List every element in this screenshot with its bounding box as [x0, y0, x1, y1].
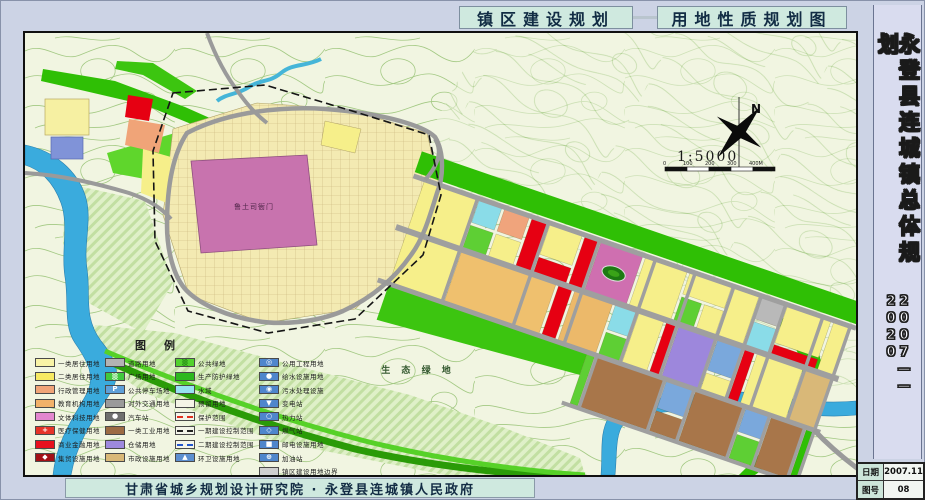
date-label: 日期 — [858, 464, 884, 481]
header-connector — [633, 16, 657, 19]
legend-swatch: ⊕ — [259, 453, 279, 462]
legend-label: 污水处理设施 — [282, 385, 324, 395]
legend-swatch — [35, 412, 55, 421]
legend-item: ◎公用工程用地 — [259, 358, 338, 367]
sheet-value: 08 — [884, 481, 923, 498]
legend-label: 公用工程用地 — [282, 358, 324, 368]
legend-swatch — [35, 385, 55, 394]
legend-swatch: ◇ — [259, 426, 279, 435]
legend-swatch — [35, 372, 55, 381]
sheet-label: 图号 — [858, 481, 884, 498]
legend-swatch: ◆ — [35, 453, 55, 462]
legend-item: ●汽车站 — [105, 412, 170, 421]
header-title-left: 镇区建设规划 — [459, 6, 633, 29]
legend-swatch — [105, 358, 125, 367]
legend-label: 公共绿地 — [198, 358, 226, 368]
legend-label: 水域 — [198, 385, 212, 395]
eco-green-label: 生 态 绿 地 — [381, 364, 454, 376]
legend-label: 邮电设施用地 — [282, 439, 324, 449]
legend-swatch — [259, 467, 279, 476]
legend-swatch — [175, 399, 195, 408]
title-block: 日期 2007.11 图号 08 — [856, 462, 925, 500]
legend-item: ●给水设施用地 — [259, 372, 338, 381]
legend-swatch — [105, 426, 125, 435]
legend-item: 仓储用地 — [105, 440, 170, 449]
legend-swatch — [175, 372, 195, 381]
legend-item: 水域 — [175, 385, 254, 394]
legend-swatch — [175, 385, 195, 394]
legend-label: 商业金融用地 — [58, 439, 100, 449]
legend-item: 商业金融用地 — [35, 440, 100, 449]
legend-item: 二期建设控制范围 — [175, 440, 254, 449]
credit-bar: 甘肃省城乡规划设计研究院 · 永登县连城镇人民政府 — [65, 478, 535, 498]
legend-label: 公共停车场地 — [128, 385, 170, 395]
legend-label: 生产防护绿地 — [198, 371, 240, 381]
legend: 图例 一类居住用地二类居住用地行政管理用地教育机构用地文体科技用地+医疗保健用地… — [35, 337, 275, 476]
legend-item: 二类居住用地 — [35, 372, 100, 381]
svg-text:300: 300 — [727, 161, 737, 167]
date-value: 2007.11 — [884, 464, 923, 481]
legend-swatch: ▒ — [105, 372, 125, 381]
legend-label: 给水设施用地 — [282, 371, 324, 381]
legend-label: 二类居住用地 — [58, 371, 100, 381]
legend-swatch — [35, 358, 55, 367]
legend-column: 一类居住用地二类居住用地行政管理用地教育机构用地文体科技用地+医疗保健用地商业金… — [35, 358, 100, 476]
legend-item: ◇燃气站 — [259, 426, 338, 435]
header-title-right: 用地性质规划图 — [657, 6, 847, 29]
legend-item: ○热力站 — [259, 412, 338, 421]
legend-swatch: ▼ — [259, 399, 279, 408]
legend-label: 燃气站 — [282, 425, 303, 435]
legend-item: 行政管理用地 — [35, 385, 100, 394]
sidebar: 永登县连城镇总体规划 2007——2020 — [873, 5, 922, 459]
legend-swatch: ▒ — [175, 358, 195, 367]
legend-swatch: ◎ — [259, 358, 279, 367]
legend-label: 汽车站 — [128, 412, 149, 422]
legend-label: 广场用地 — [128, 371, 156, 381]
legend-label: 变电站 — [282, 398, 303, 408]
svg-text:100: 100 — [683, 161, 693, 167]
legend-item: ▒广场用地 — [105, 372, 170, 381]
legend-label: 二期建设控制范围 — [198, 439, 254, 449]
legend-swatch — [105, 453, 125, 462]
legend-label: 文体科技用地 — [58, 412, 100, 422]
svg-text:0: 0 — [663, 161, 666, 167]
planning-map-frame: 鲁土司衙门 — [23, 31, 858, 477]
page: { "header": { "title_left": "镇区建设规划", "t… — [0, 0, 925, 500]
legend-item: 一期建设控制范围 — [175, 426, 254, 435]
legend-swatch: ● — [105, 412, 125, 421]
legend-swatch: P — [105, 385, 125, 394]
legend-label: 对外交通用地 — [128, 398, 170, 408]
legend-item: 教育机构用地 — [35, 399, 100, 408]
legend-swatch — [35, 440, 55, 449]
legend-columns: 一类居住用地二类居住用地行政管理用地教育机构用地文体科技用地+医疗保健用地商业金… — [35, 358, 275, 476]
legend-swatch — [175, 412, 195, 421]
legend-item: ▼变电站 — [259, 399, 338, 408]
legend-label: 热力站 — [282, 412, 303, 422]
legend-label: 一类居住用地 — [58, 358, 100, 368]
drawing-set-title: 永登县连城镇总体规划 — [877, 33, 919, 285]
legend-swatch — [175, 440, 195, 449]
legend-label: 医疗保健用地 — [58, 425, 100, 435]
legend-swatch: + — [35, 426, 55, 435]
legend-item: P公共停车场地 — [105, 385, 170, 394]
legend-column: ◎公用工程用地●给水设施用地◉污水处理设施▼变电站○热力站◇燃气站■邮电设施用地… — [259, 358, 338, 476]
legend-swatch — [105, 399, 125, 408]
legend-item: 一类居住用地 — [35, 358, 100, 367]
legend-item: ◆集贸设施用地 — [35, 453, 100, 462]
legend-label: 一类工业用地 — [128, 425, 170, 435]
legend-label: 仓储用地 — [128, 439, 156, 449]
legend-item: 对外交通用地 — [105, 399, 170, 408]
legend-item: 一类工业用地 — [105, 426, 170, 435]
legend-swatch: ◉ — [259, 385, 279, 394]
legend-swatch: ▲ — [175, 453, 195, 462]
north-label: N — [751, 102, 761, 116]
legend-item: 市政设施用地 — [105, 453, 170, 462]
legend-item: ■邮电设施用地 — [259, 440, 338, 449]
legend-column: 道路用地▒广场用地P公共停车场地对外交通用地●汽车站一类工业用地仓储用地市政设施… — [105, 358, 170, 476]
legend-swatch: ● — [259, 372, 279, 381]
legend-item: ⊕加油站 — [259, 453, 338, 462]
historic-site-label: 鲁土司衙门 — [234, 202, 274, 211]
legend-swatch — [175, 426, 195, 435]
legend-item: 镇区建设用地边界 — [259, 467, 338, 476]
legend-label: 加油站 — [282, 453, 303, 463]
legend-label: 市政设施用地 — [128, 453, 170, 463]
legend-label: 预留用地 — [198, 398, 226, 408]
legend-swatch — [35, 399, 55, 408]
legend-title: 图例 — [35, 337, 275, 353]
drawing-set-years: 2007——2020 — [885, 294, 911, 459]
legend-label: 行政管理用地 — [58, 385, 100, 395]
svg-text:200: 200 — [705, 161, 715, 167]
legend-column: ▒公共绿地生产防护绿地水域预留用地保护范围一期建设控制范围二期建设控制范围▲环卫… — [175, 358, 254, 476]
legend-item: 预留用地 — [175, 399, 254, 408]
legend-label: 一期建设控制范围 — [198, 425, 254, 435]
legend-item: ▒公共绿地 — [175, 358, 254, 367]
legend-label: 镇区建设用地边界 — [282, 466, 338, 476]
legend-label: 环卫设施用地 — [198, 453, 240, 463]
svg-text:400M: 400M — [749, 161, 763, 167]
legend-swatch: ○ — [259, 412, 279, 421]
legend-item: ◉污水处理设施 — [259, 385, 338, 394]
legend-item: +医疗保健用地 — [35, 426, 100, 435]
legend-label: 集贸设施用地 — [58, 453, 100, 463]
legend-item: 生产防护绿地 — [175, 372, 254, 381]
legend-label: 教育机构用地 — [58, 398, 100, 408]
legend-item: 文体科技用地 — [35, 412, 100, 421]
legend-item: 保护范围 — [175, 412, 254, 421]
legend-label: 保护范围 — [198, 412, 226, 422]
legend-swatch: ■ — [259, 440, 279, 449]
legend-item: 道路用地 — [105, 358, 170, 367]
legend-swatch — [105, 440, 125, 449]
legend-label: 道路用地 — [128, 358, 156, 368]
legend-item: ▲环卫设施用地 — [175, 453, 254, 462]
